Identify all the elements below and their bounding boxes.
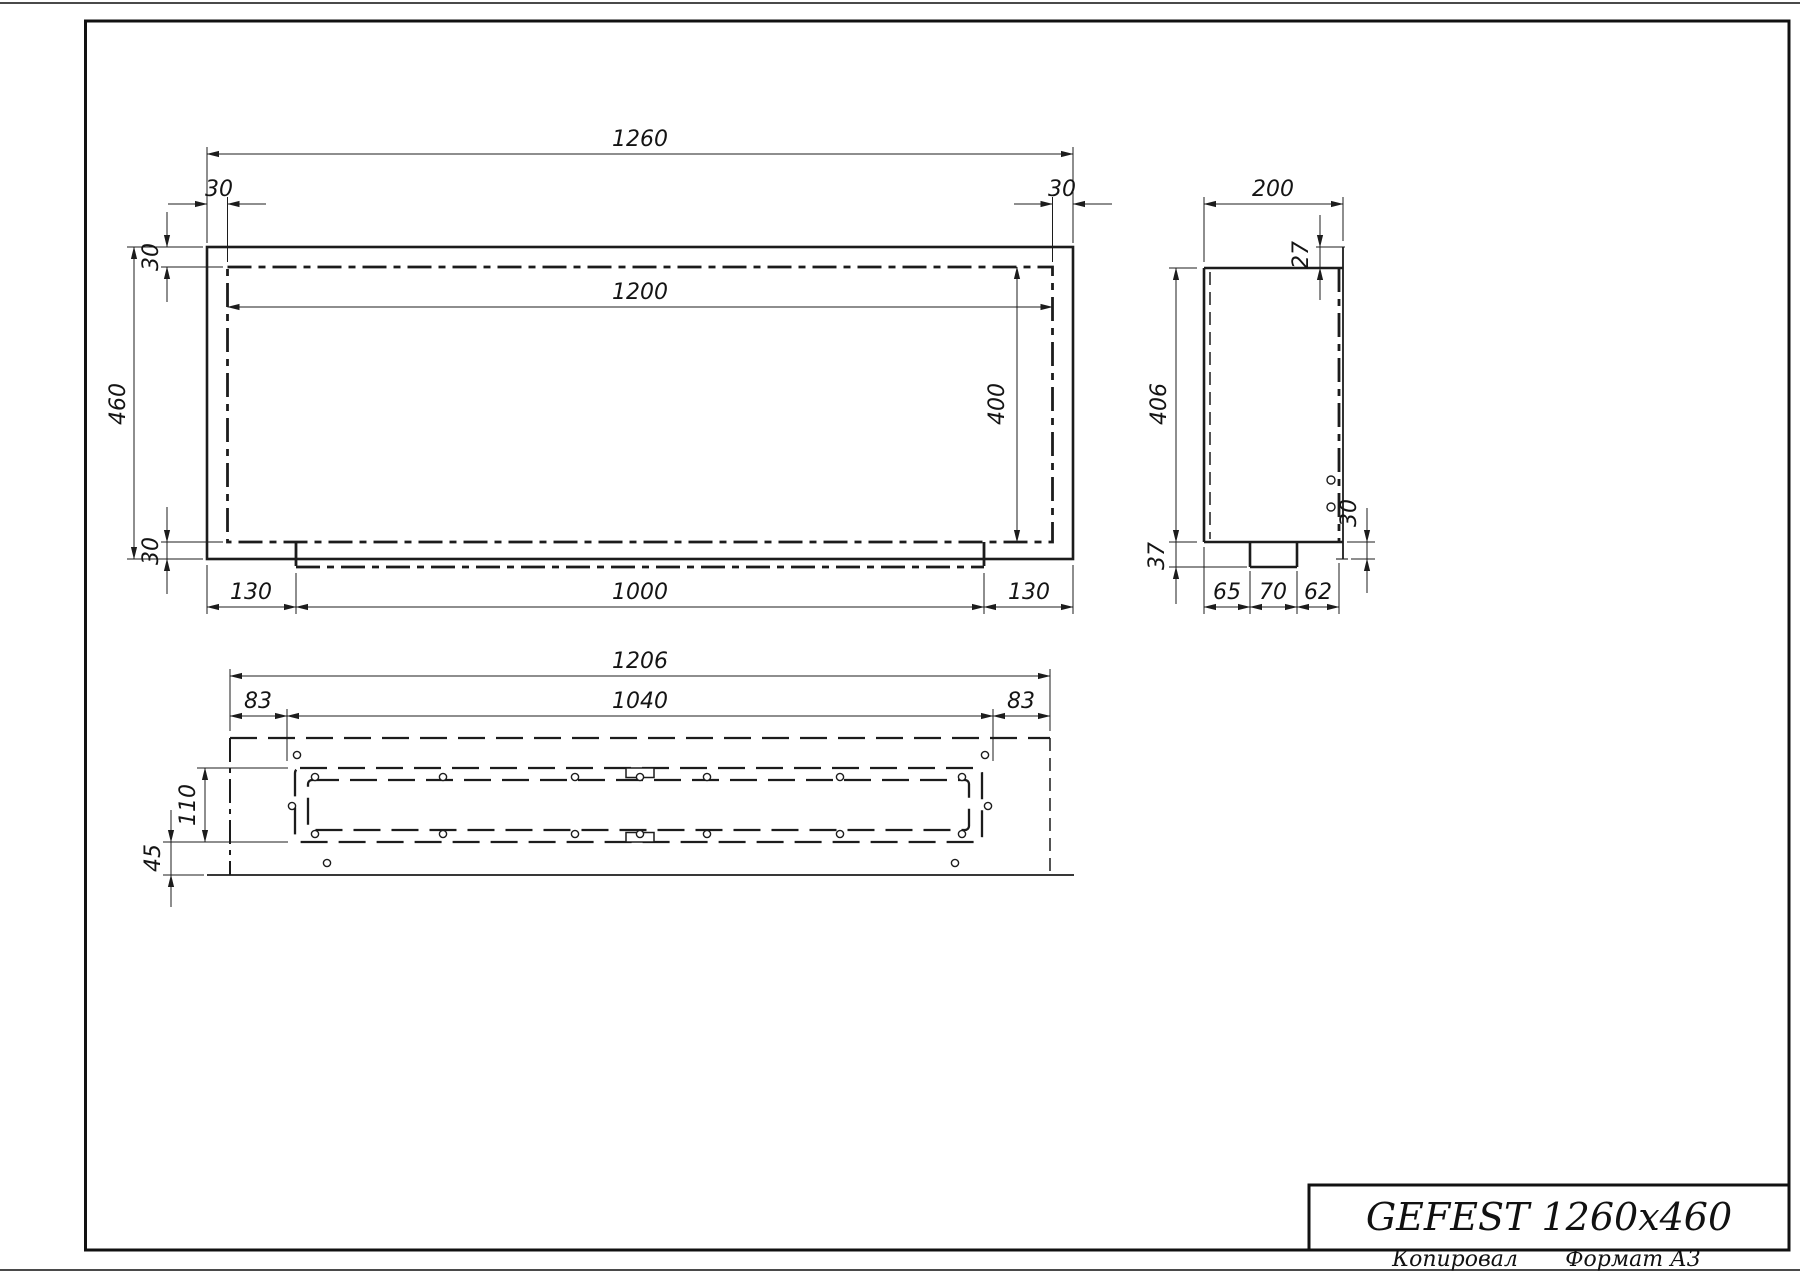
dim-label: 110 [176,784,201,826]
plan-view: 1206 83 1040 83 110 45 [141,649,1074,907]
drawing-page: 1260 30 30 1200 460 30 [0,0,1800,1273]
dim-front-wall-top: 30 [139,212,223,302]
dim-side-bottom-chain: 65 70 62 [1204,547,1339,614]
front-view: 1260 30 30 1200 460 30 [106,127,1112,614]
plan-burner-frame-inner [308,780,969,830]
dim-label: 30 [205,177,233,202]
side-mount-holes [1327,476,1335,511]
dim-front-total-width: 1260 [207,127,1073,243]
dim-label: 1000 [612,580,668,605]
dim-front-total-height: 460 [106,247,203,559]
dim-plan-frame-width: 1040 [287,689,993,761]
dim-side-depth: 200 [1204,177,1343,262]
dim-label: 1260 [612,127,668,152]
dim-plan-frame-depth: 110 [163,768,288,842]
dim-label: 30 [139,243,164,271]
dim-front-flange-right: 30 [1014,177,1112,262]
side-view: 200 27 406 37 30 [1145,177,1375,614]
side-view-outline [1204,247,1348,567]
front-tray-hidden [296,542,984,567]
page-frame [0,3,1800,1270]
dim-label: 30 [1337,499,1362,527]
dim-label: 130 [1008,580,1050,605]
dim-label: 45 [141,844,166,872]
front-opening-hidden [228,267,1053,542]
dim-label: 27 [1289,241,1314,269]
dim-side-top-lip: 27 [1289,215,1320,300]
dim-side-body-height: 406 [1147,268,1197,542]
title-block: GEFEST 1260x460 Копировал Формат А3 [1309,1185,1789,1272]
dim-label: 400 [985,383,1010,425]
product-title: GEFEST 1260x460 [1366,1195,1732,1239]
dim-label: 62 [1304,580,1332,605]
dim-label: 30 [1048,177,1076,202]
dim-plan-margin-left: 83 [230,689,287,761]
dim-label: 37 [1145,542,1170,570]
side-tray [1250,542,1297,567]
dim-front-opening-width: 1200 [228,280,1053,307]
dim-label: 1200 [612,280,668,305]
dim-label: 65 [1213,580,1241,605]
drawing-canvas: 1260 30 30 1200 460 30 [0,0,1800,1273]
dim-label: 200 [1252,177,1294,202]
dim-label: 1206 [612,649,668,674]
drawing-border [86,21,1790,1250]
copied-label: Копировал [1391,1247,1518,1272]
dim-label: 83 [244,689,272,714]
dim-front-wall-bottom: 30 [139,507,223,594]
dim-front-opening-height: 400 [985,267,1017,542]
dim-label: 460 [106,383,131,425]
dim-plan-margin-right: 83 [993,689,1050,716]
dim-label: 70 [1259,580,1287,605]
format-label: Формат А3 [1565,1247,1700,1272]
dim-label: 130 [230,580,272,605]
plan-view-outline [207,738,1074,875]
dim-label: 406 [1147,383,1172,425]
dim-label: 30 [139,537,164,565]
dim-front-bottom-chain: 130 1000 130 [207,565,1073,614]
dim-front-flange-left: 30 [168,177,266,262]
dim-label: 83 [1007,689,1035,714]
dim-label: 1040 [612,689,668,714]
